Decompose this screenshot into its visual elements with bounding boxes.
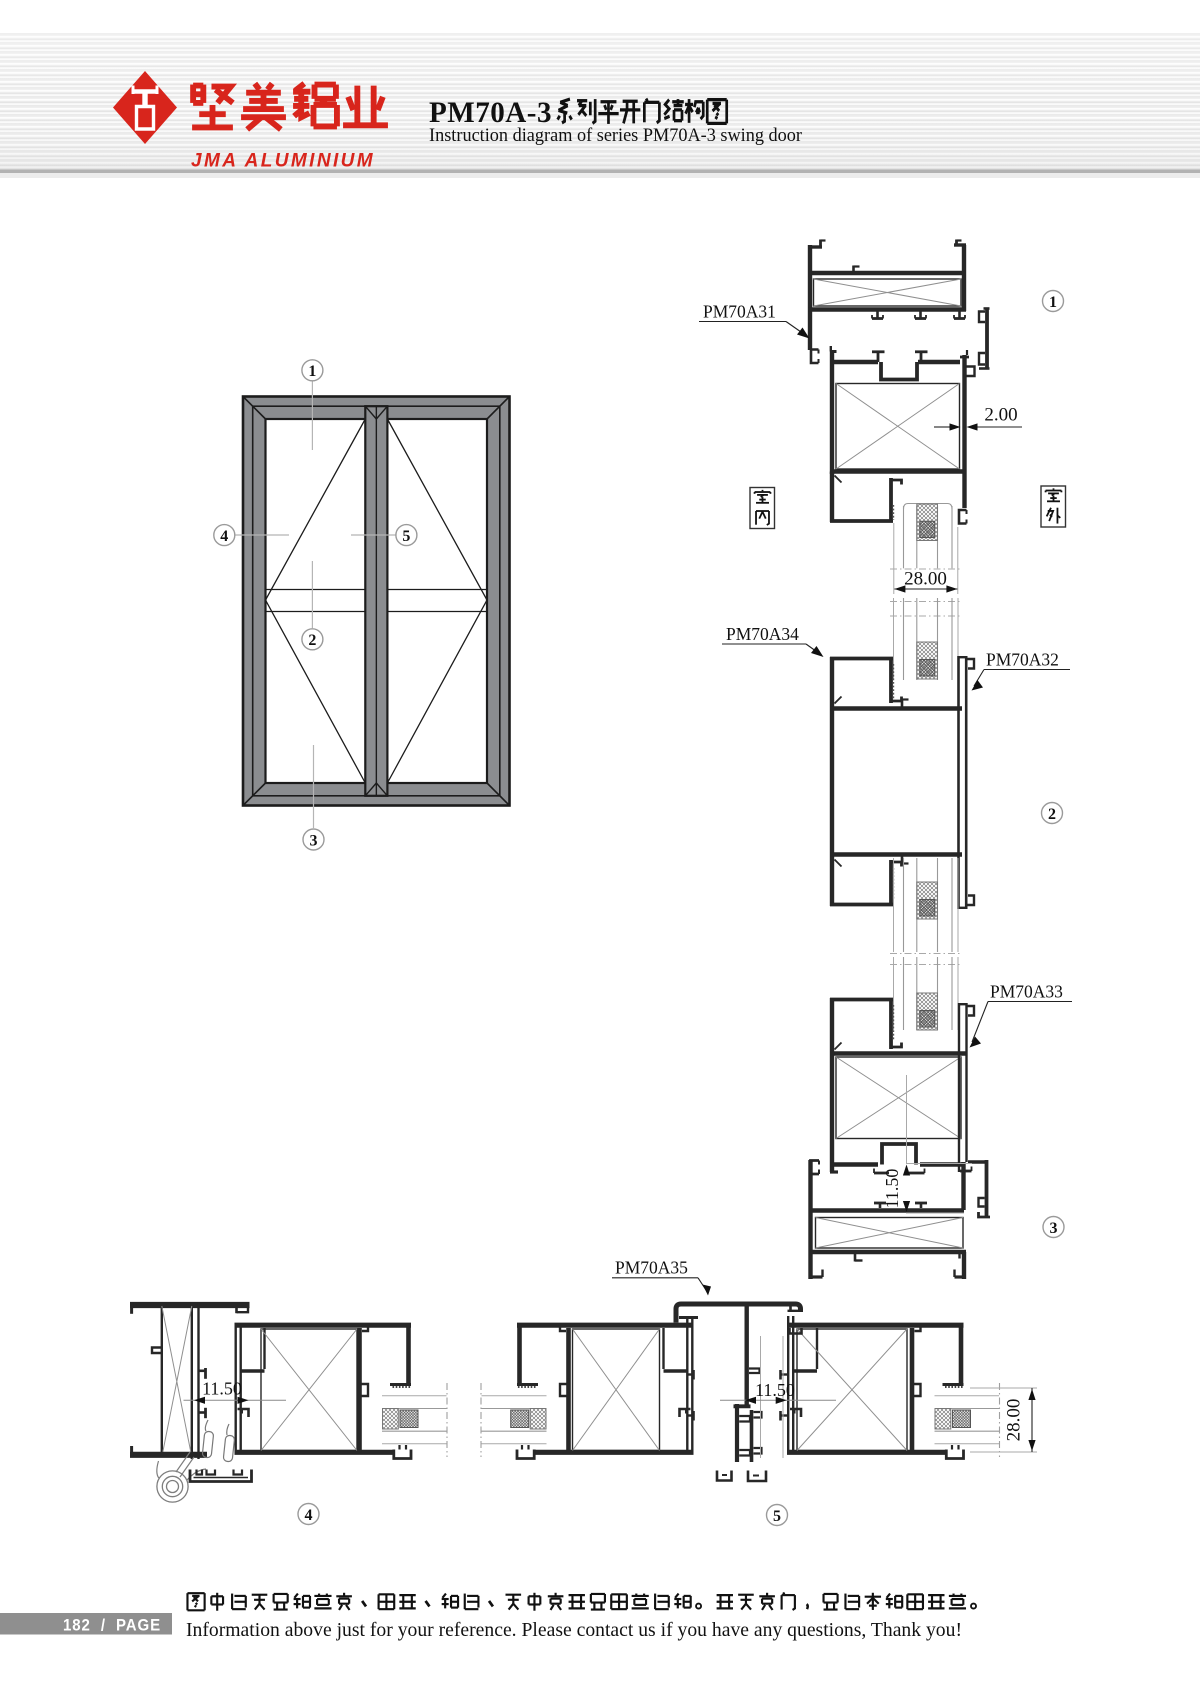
svg-text:4: 4 — [305, 1507, 313, 1524]
svg-text:Information above just for you: Information above just for your referenc… — [186, 1620, 962, 1641]
svg-text:4: 4 — [220, 528, 228, 545]
svg-text:3: 3 — [1050, 1220, 1058, 1237]
svg-text:PM70A33: PM70A33 — [990, 982, 1063, 1002]
svg-text:5: 5 — [402, 528, 410, 545]
svg-text:JMA ALUMINIUM: JMA ALUMINIUM — [191, 151, 375, 172]
svg-text:PM70A34: PM70A34 — [726, 624, 799, 644]
svg-text:2.00: 2.00 — [984, 405, 1017, 426]
svg-text:182 / PAGE: 182 / PAGE — [63, 1616, 161, 1635]
svg-text:11.50: 11.50 — [755, 1380, 795, 1400]
svg-text:PM70A31: PM70A31 — [703, 302, 776, 322]
svg-text:Instruction diagram of series: Instruction diagram of series PM70A-3 sw… — [429, 126, 802, 146]
svg-text:1: 1 — [308, 363, 316, 380]
svg-text:PM70A-3: PM70A-3 — [429, 97, 552, 129]
svg-text:5: 5 — [773, 1508, 781, 1525]
svg-text:2: 2 — [1048, 806, 1056, 823]
svg-text:2: 2 — [308, 632, 316, 649]
svg-text:3: 3 — [310, 832, 318, 849]
svg-text:PM70A32: PM70A32 — [986, 650, 1059, 670]
svg-text:PM70A35: PM70A35 — [615, 1258, 688, 1278]
svg-text:11.50: 11.50 — [882, 1169, 902, 1209]
svg-text:1: 1 — [1049, 294, 1057, 311]
svg-text:28.00: 28.00 — [1004, 1399, 1025, 1442]
svg-text:28.00: 28.00 — [904, 569, 947, 590]
svg-text:11.50: 11.50 — [202, 1379, 242, 1399]
